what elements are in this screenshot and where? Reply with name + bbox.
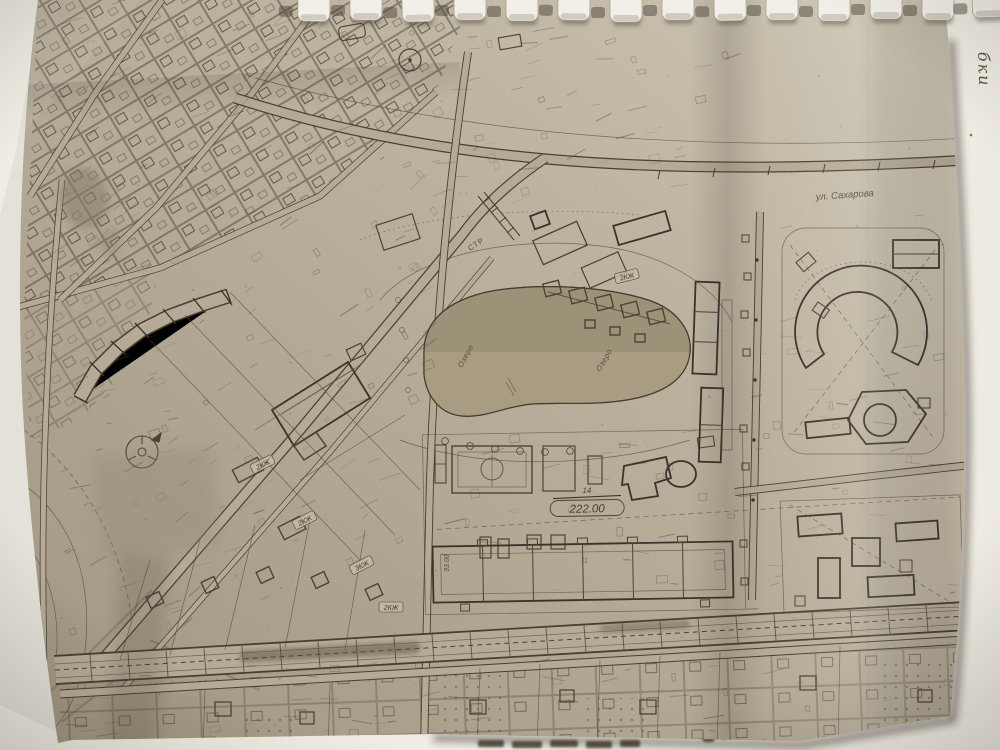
photographed-map-page: бки [0, 0, 1000, 750]
map-photo-canvas: бки [0, 0, 1000, 750]
photo-vignette [0, 0, 1000, 750]
